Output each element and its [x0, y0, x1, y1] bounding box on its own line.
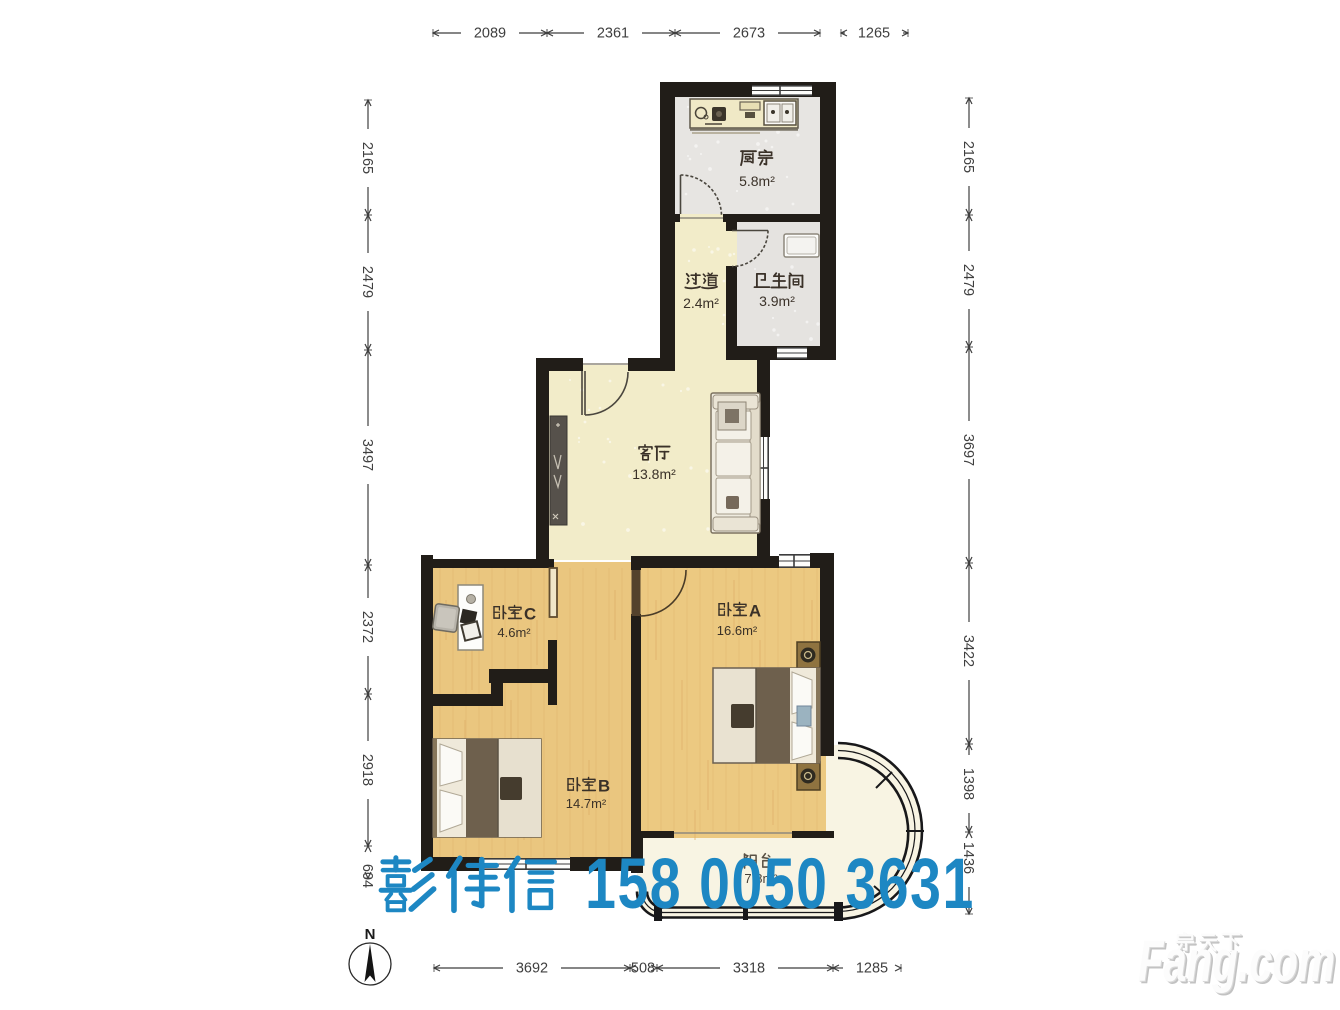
svg-text:3318: 3318 [733, 961, 765, 977]
svg-text:158 0050 3631: 158 0050 3631 [585, 844, 975, 923]
svg-text:2165: 2165 [960, 141, 976, 173]
svg-text:3.9m²: 3.9m² [759, 293, 795, 309]
svg-text:3422: 3422 [960, 635, 976, 667]
svg-text:5.8m²: 5.8m² [739, 173, 775, 189]
svg-text:2918: 2918 [359, 754, 375, 786]
svg-text:13.8m²: 13.8m² [632, 466, 676, 482]
svg-text:2089: 2089 [474, 26, 506, 42]
svg-text:A: A [749, 601, 761, 620]
svg-text:2165: 2165 [359, 142, 375, 174]
svg-text:604: 604 [359, 864, 375, 888]
svg-text:4.6m²: 4.6m² [497, 625, 531, 640]
svg-text:14.7m²: 14.7m² [566, 796, 607, 811]
svg-text:1398: 1398 [960, 768, 976, 800]
svg-text:508: 508 [631, 961, 655, 977]
svg-text:C: C [524, 604, 536, 623]
svg-text:B: B [598, 776, 610, 795]
svg-text:3697: 3697 [960, 434, 976, 466]
svg-text:2.4m²: 2.4m² [683, 295, 719, 311]
svg-text:N: N [365, 926, 376, 943]
svg-text:1285: 1285 [856, 961, 888, 977]
svg-text:2479: 2479 [960, 264, 976, 296]
svg-text:2479: 2479 [359, 266, 375, 298]
svg-text:1265: 1265 [858, 26, 890, 42]
svg-text:2361: 2361 [597, 26, 629, 42]
svg-text:3497: 3497 [359, 439, 375, 471]
svg-text:Fang.com: Fang.com [1138, 928, 1335, 993]
svg-text:3692: 3692 [516, 961, 548, 977]
svg-text:16.6m²: 16.6m² [717, 623, 758, 638]
svg-text:2673: 2673 [733, 26, 765, 42]
svg-text:2372: 2372 [359, 611, 375, 643]
